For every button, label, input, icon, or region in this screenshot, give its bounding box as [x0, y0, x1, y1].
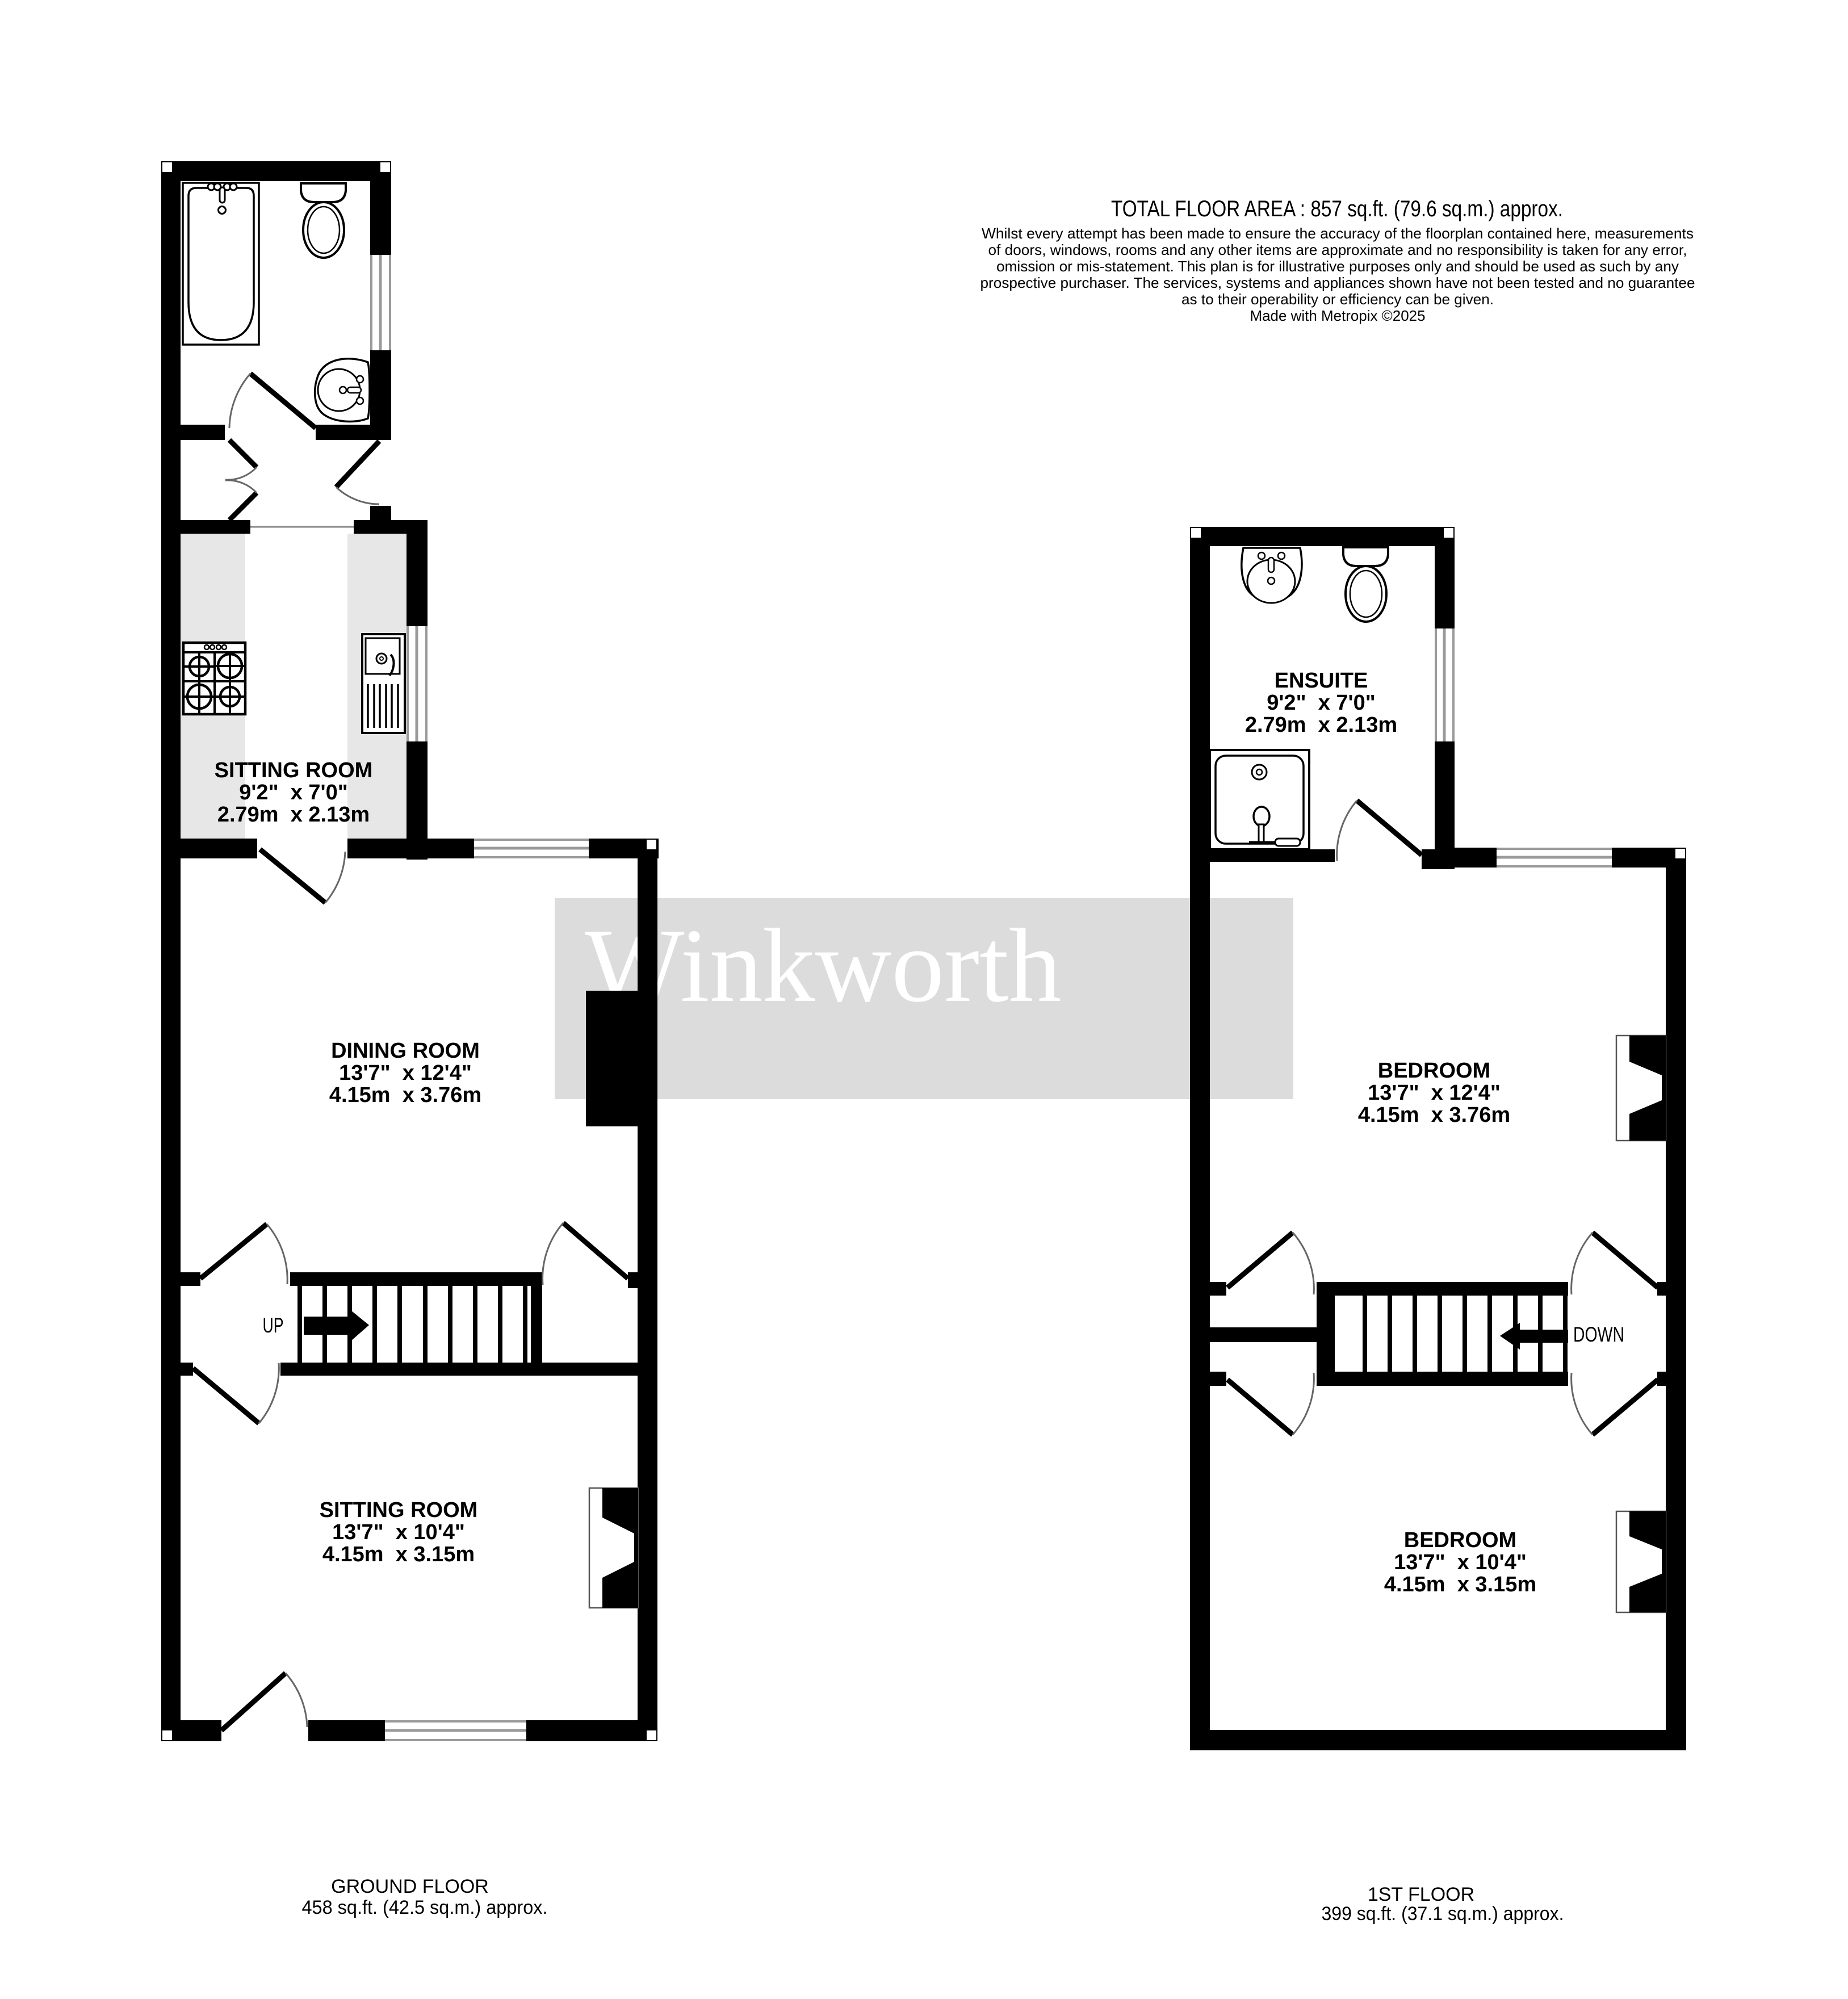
svg-text:1ST FLOOR: 1ST FLOOR: [1368, 1884, 1474, 1905]
svg-text:399 sq.ft. (37.1 sq.m.) approx: 399 sq.ft. (37.1 sq.m.) approx.: [1322, 1903, 1564, 1925]
svg-text:BEDROOM13'7" x 12'4"4.15m x: BEDROOM13'7" x 12'4"4.15m x 3.76m: [1358, 1059, 1510, 1127]
svg-text:TOTAL FLOOR AREA : 857 sq.ft.: TOTAL FLOOR AREA : 857 sq.ft. (79.6 sq.m…: [1111, 196, 1563, 221]
svg-text:DOWN: DOWN: [1573, 1323, 1624, 1346]
svg-text:UP: UP: [263, 1314, 284, 1337]
svg-text:GROUND FLOOR: GROUND FLOOR: [331, 1876, 489, 1897]
svg-text:SITTING ROOM13'7" x 10'4"4.15: SITTING ROOM13'7" x 10'4"4.15m x 3.15m: [320, 1498, 478, 1566]
svg-text:DINING ROOM13'7" x 12'4"4.15m: DINING ROOM13'7" x 12'4"4.15m x 3.76m: [329, 1039, 481, 1107]
svg-text:BEDROOM13'7" x 10'4"4.15m x: BEDROOM13'7" x 10'4"4.15m x 3.15m: [1384, 1528, 1536, 1596]
svg-text:458 sq.ft. (42.5 sq.m.) approx: 458 sq.ft. (42.5 sq.m.) approx.: [302, 1897, 548, 1918]
